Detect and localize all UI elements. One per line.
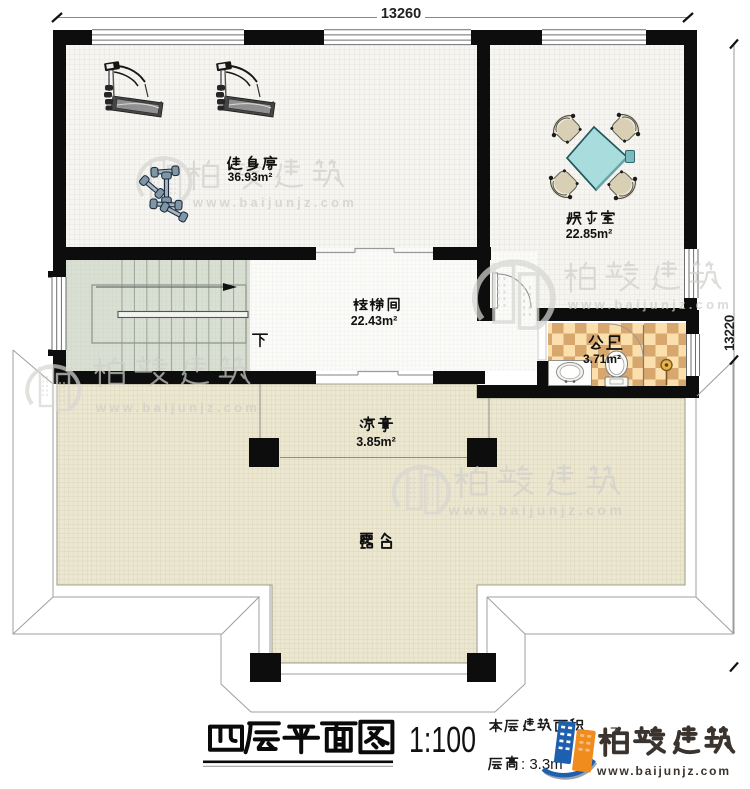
svg-text:22.43m²: 22.43m²: [351, 314, 398, 328]
svg-text:3.71m²: 3.71m²: [583, 352, 621, 366]
svg-text:22.85m²: 22.85m²: [566, 227, 613, 241]
svg-text:www.baijunjz.com: www.baijunjz.com: [567, 297, 732, 312]
svg-text:3.85m²: 3.85m²: [356, 435, 396, 449]
svg-text:36.93m²: 36.93m²: [228, 170, 273, 184]
svg-text:www.baijunjz.com: www.baijunjz.com: [192, 195, 357, 210]
svg-text:www.baijunjz.com: www.baijunjz.com: [95, 400, 260, 415]
svg-text:13260: 13260: [381, 6, 421, 22]
svg-text:13220: 13220: [722, 315, 737, 351]
svg-text:1:100: 1:100: [409, 719, 476, 760]
svg-text:www.baijunjz.com: www.baijunjz.com: [596, 764, 731, 778]
svg-text:www.baijunjz.com: www.baijunjz.com: [448, 502, 626, 518]
